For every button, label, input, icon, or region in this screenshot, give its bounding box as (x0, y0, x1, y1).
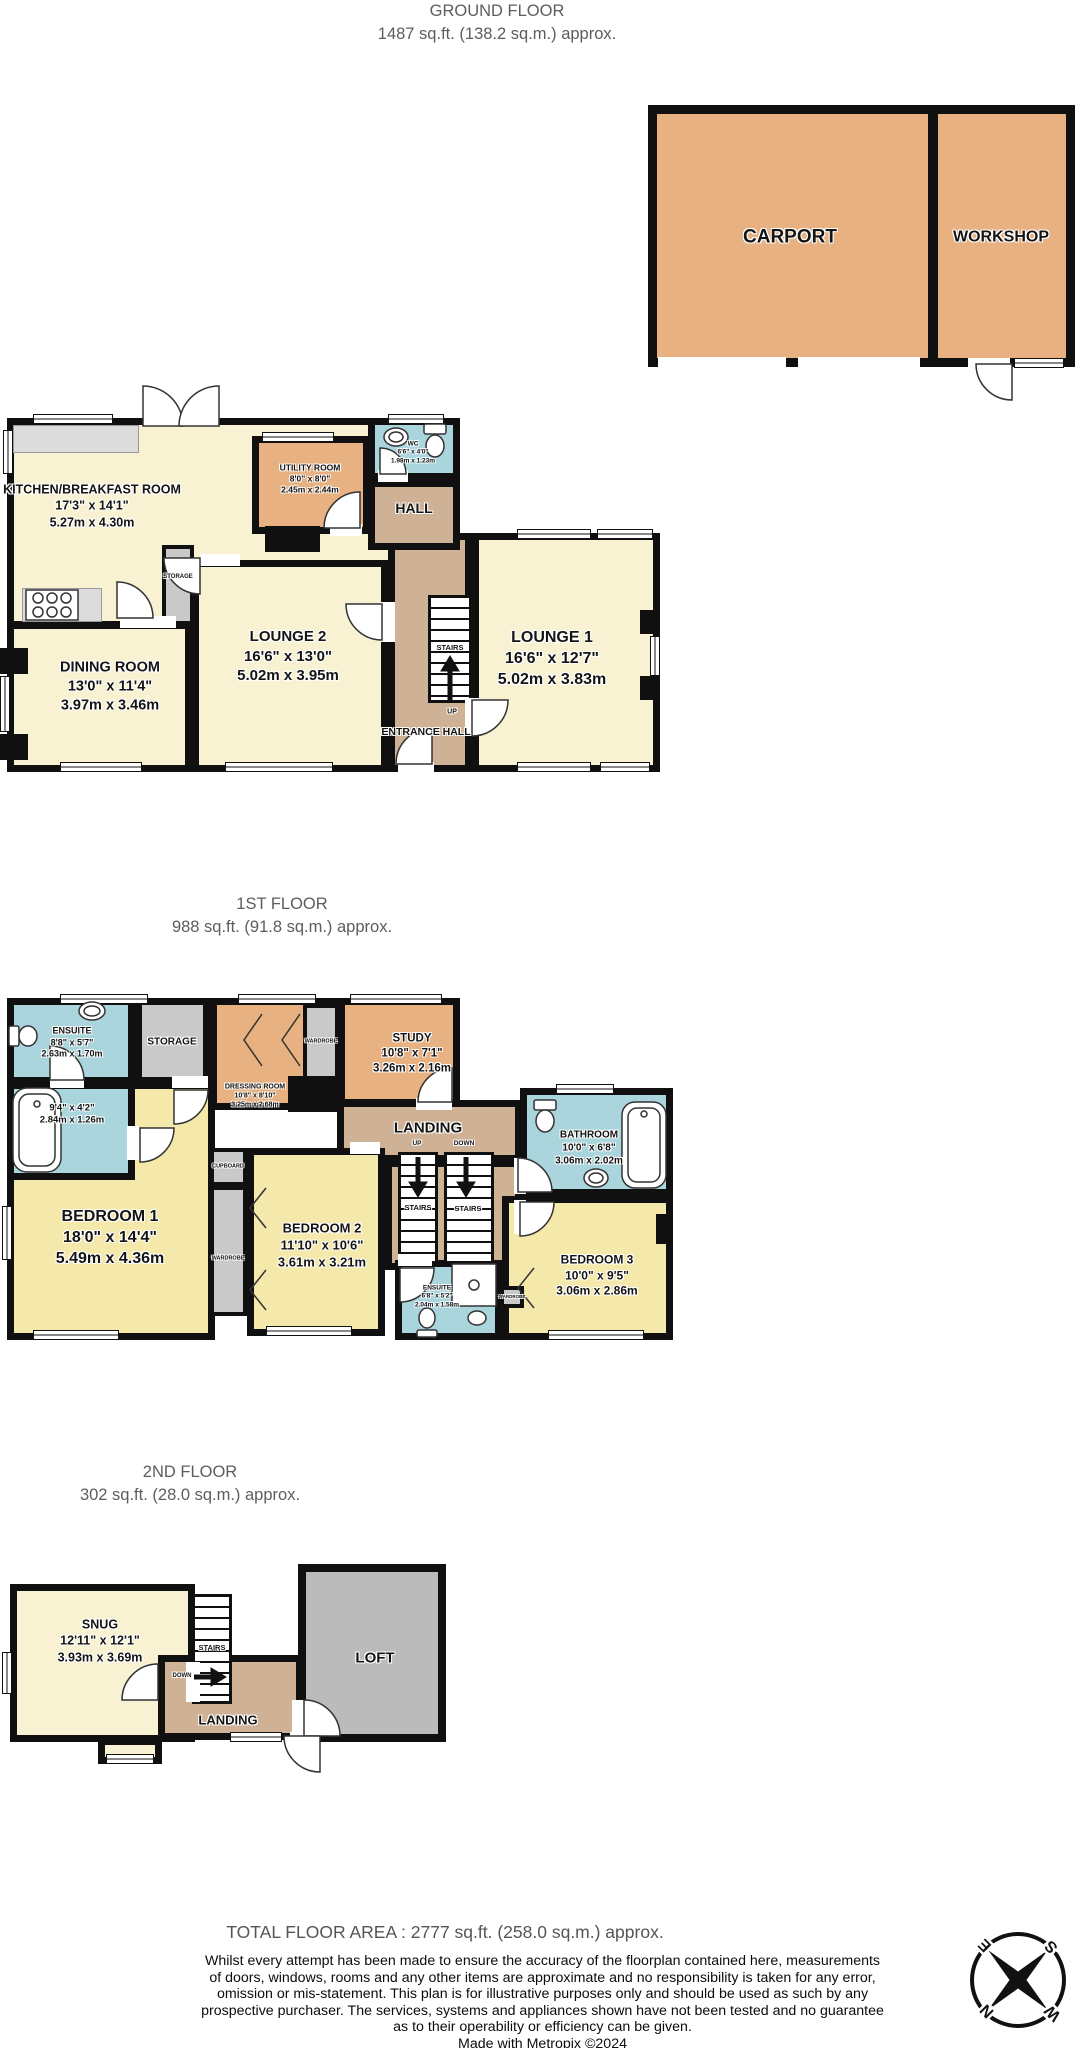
compass-star (959, 1924, 1078, 2039)
bathroom-door-opening (514, 1158, 526, 1194)
total-floor-area: TOTAL FLOOR AREA : 2777 sq.ft. (258.0 sq… (0, 1922, 890, 1943)
landing-second-label: LANDING (198, 1713, 257, 1730)
lounge1-window-bottom-right (600, 762, 650, 772)
ground-floor-title-line2: 1487 sq.ft. (138.2 sq.m.) approx. (157, 23, 837, 46)
lounge1-label: LOUNGE 1 16'6" x 12'7" 5.02m x 3.83m (498, 628, 607, 690)
ensuite2-dims-metric: 2.04m x 1.58m (415, 1301, 459, 1309)
lounge1-dims-imperial: 16'6" x 12'7" (498, 649, 607, 670)
utility-name: UTILITY ROOM (280, 462, 341, 473)
compass-e: E (975, 1935, 995, 1955)
disclaimer-line4: prospective purchaser. The services, sys… (90, 2003, 995, 2020)
lounge1-bay-stub-top (640, 610, 660, 634)
ground-floor-title-line1: GROUND FLOOR (157, 0, 837, 23)
dressing-name: DRESSING ROOM (225, 1082, 285, 1091)
room-ensuite-bath2 (7, 1082, 135, 1180)
first-floor-title-line2: 988 sq.ft. (91.8 sq.m.) approx. (0, 916, 564, 939)
hall-lounge2-door-opening (381, 602, 395, 642)
disclaimer-line2: of doors, windows, rooms and any other i… (90, 1970, 995, 1987)
bedroom1-name: BEDROOM 1 (56, 1207, 165, 1228)
bedroom3-door-opening (514, 1200, 526, 1234)
lounge1-window-top-right (597, 529, 653, 539)
bedroom2-door-opening (350, 1142, 380, 1154)
bedroom1-window-bottom (33, 1330, 119, 1340)
dressing-dims-metric: 3.25m x 2.68m (225, 1101, 285, 1110)
bathroom-name: BATHROOM (555, 1129, 623, 1142)
utility-dims-imperial: 8'0" x 8'0" (280, 473, 341, 484)
lounge1-window-bottom-left (517, 762, 591, 772)
bath2-door-opening (127, 1126, 139, 1160)
ensuite1-window (60, 994, 148, 1004)
bedroom2-dims-imperial: 11'10" x 10'6" (278, 1238, 366, 1255)
kitchen-dims-metric: 5.27m x 4.30m (3, 514, 181, 530)
storage-first-label: STORAGE (147, 1036, 196, 1049)
wc-window (388, 414, 444, 424)
closet-wardrobe-bedroom2 (210, 1186, 247, 1316)
bedroom2-label: BEDROOM 2 11'10" x 10'6" 3.61m x 3.21m (278, 1221, 366, 1272)
ensuite2-dims-imperial: 6'8" x 5'2" (415, 1293, 459, 1301)
kitchen-double-door-opening (143, 414, 219, 426)
wc-door-opening (378, 470, 408, 482)
utility-window (262, 432, 334, 442)
bath2-label: 9'4" x 4'2" 2.84m x 1.26m (40, 1103, 104, 1128)
wardrobe-small-label: WARDROBE (499, 1294, 526, 1300)
bath2-dims-imperial: 9'4" x 4'2" (40, 1103, 104, 1115)
wardrobe-bedroom2-label: WARDROBE (212, 1255, 245, 1262)
bedroom2-window-bottom (266, 1326, 352, 1336)
study-window (350, 994, 442, 1004)
wardrobe-dressing-label: WARDROBE (305, 1038, 338, 1045)
bedroom1-dims-metric: 5.49m x 4.36m (56, 1248, 165, 1269)
floorplan-canvas: GROUND FLOOR 1487 sq.ft. (138.2 sq.m.) a… (0, 0, 1079, 2048)
compass-rose: N S E W (956, 1924, 1079, 2040)
bath2-dims-metric: 2.84m x 1.26m (40, 1115, 104, 1127)
study-label: STUDY 10'8" x 7'1" 3.26m x 2.16m (373, 1032, 451, 1077)
bedroom1-window-left (2, 1206, 12, 1260)
snug-door-opening (186, 1662, 200, 1702)
bedroom2-name: BEDROOM 2 (278, 1221, 366, 1238)
kitchen-counter-top (13, 425, 139, 453)
chimney-block-dressing (288, 1076, 340, 1112)
ensuite1-dims-imperial: 8'8" x 5'7" (41, 1037, 102, 1049)
lounge2-label: LOUNGE 2 16'6" x 13'0" 5.02m x 3.95m (237, 627, 339, 686)
study-dims-imperial: 10'8" x 7'1" (373, 1047, 451, 1062)
wall-chunk-utility (265, 526, 320, 552)
disclaimer-line1: Whilst every attempt has been made to en… (90, 1953, 995, 1970)
bathroom-window (556, 1084, 614, 1094)
workshop-door-opening (968, 358, 1010, 369)
ground-stairs-label: STAIRS (437, 643, 464, 653)
lounge1-bay-stub-bottom (640, 676, 660, 700)
snug-name: SNUG (58, 1617, 143, 1633)
first-floor-title-line1: 1ST FLOOR (0, 893, 564, 916)
kitchen-counter-stove (22, 588, 102, 622)
kitchen-dims-imperial: 17'3" x 14'1" (3, 498, 181, 514)
first-stairs-label-left: STAIRS (405, 1203, 432, 1213)
snug-window-left (2, 1652, 12, 1694)
dressing-dims-imperial: 10'8" x 8'10" (225, 1091, 285, 1100)
dining-bay-stub-top (0, 648, 28, 674)
disclaimer: Whilst every attempt has been made to en… (90, 1953, 995, 2048)
snug-dims-metric: 3.93m x 3.69m (58, 1649, 143, 1665)
dining-door-opening (120, 616, 176, 628)
wc-dims-metric: 1.98m x 1.23m (391, 457, 435, 465)
ensuite1-label: ENSUITE 8'8" x 5'7" 2.63m x 1.70m (41, 1025, 102, 1060)
kitchen-label: KITCHEN/BREAKFAST ROOM 17'3" x 14'1" 5.2… (3, 482, 181, 531)
chimney-block-bedroom3 (656, 1214, 673, 1244)
bedroom3-dims-metric: 3.06m x 2.86m (556, 1284, 637, 1300)
hall-label: HALL (395, 499, 432, 517)
carport-workshop-divider-wall (928, 105, 938, 367)
ground-stairs-up-label: UP (447, 707, 457, 716)
first-floor-title: 1ST FLOOR 988 sq.ft. (91.8 sq.m.) approx… (0, 893, 564, 939)
study-name: STUDY (373, 1032, 451, 1047)
landing-up-label: UP (412, 1140, 421, 1148)
snug-step-window (106, 1754, 154, 1764)
wc-dims-imperial: 6'6" x 4'0" (391, 449, 435, 457)
bedroom3-dims-imperial: 10'0" x 9'5" (556, 1268, 637, 1284)
bedroom1-label: BEDROOM 1 18'0" x 14'4" 5.49m x 4.36m (56, 1207, 165, 1269)
bedroom3-window-bottom (548, 1330, 644, 1340)
dining-label: DINING ROOM 13'0" x 11'4" 3.97m x 3.46m (60, 659, 160, 716)
ensuite1-dims-metric: 2.63m x 1.70m (41, 1049, 102, 1061)
lounge2-door-opening (200, 554, 240, 566)
dining-dims-metric: 3.97m x 3.46m (60, 696, 160, 715)
disclaimer-line6: Made with Metropix ©2024 (90, 2036, 995, 2048)
bedroom3-label: BEDROOM 3 10'0" x 9'5" 3.06m x 2.86m (556, 1253, 637, 1300)
lounge1-dims-metric: 5.02m x 3.83m (498, 669, 607, 690)
front-door-opening (398, 762, 434, 774)
bedroom3-name: BEDROOM 3 (556, 1253, 637, 1269)
ground-floor-title: GROUND FLOOR 1487 sq.ft. (138.2 sq.m.) a… (157, 0, 837, 46)
carport-opening-right (798, 357, 920, 368)
bedroom2-dims-metric: 3.61m x 3.21m (278, 1254, 366, 1271)
dining-bay-window (0, 676, 10, 732)
entrance-hall-label: ENTRANCE HALL (381, 726, 470, 740)
ensuite2-label: ENSUITE 6'8" x 5'2" 2.04m x 1.58m (415, 1284, 459, 1309)
lounge2-name: LOUNGE 2 (237, 627, 339, 647)
disclaimer-line5: as to their operability or efficiency ca… (90, 2019, 995, 2036)
study-door-opening (416, 1098, 452, 1110)
storage-ground-label: STORAGE (163, 574, 193, 582)
landing-first-label: LANDING (394, 1118, 462, 1138)
bedroom1-dims-imperial: 18'0" x 14'4" (56, 1228, 165, 1249)
second-floor-title: 2ND FLOOR 302 sq.ft. (28.0 sq.m.) approx… (0, 1461, 380, 1507)
closet-storage-ground (162, 545, 194, 625)
bathroom-dims-imperial: 10'0" x 6'8" (555, 1142, 623, 1155)
dressing-label: DRESSING ROOM 10'8" x 8'10" 3.25m x 2.68… (225, 1082, 285, 1109)
utility-dims-metric: 2.45m x 2.44m (280, 485, 341, 496)
lounge2-window-bottom (225, 762, 333, 772)
kitchen-name: KITCHEN/BREAKFAST ROOM (3, 482, 181, 498)
lounge1-bay-window (650, 636, 660, 676)
ensuite1-door-opening (50, 1076, 84, 1088)
carport-label: CARPORT (743, 226, 837, 251)
second-floor-title-line1: 2ND FLOOR (0, 1461, 380, 1484)
dining-name: DINING ROOM (60, 659, 160, 678)
kitchen-window-left (3, 430, 13, 474)
disclaimer-line3: omission or mis-statement. This plan is … (90, 1986, 995, 2003)
dining-window-bottom (60, 762, 142, 772)
cupboard-label: CUPBOARD (212, 1163, 244, 1170)
lounge2-dims-imperial: 16'6" x 13'0" (237, 646, 339, 666)
bathroom-label: BATHROOM 10'0" x 6'8" 3.06m x 2.02m (555, 1129, 623, 1168)
snug-label: SNUG 12'11" x 12'1" 3.93m x 3.69m (58, 1617, 143, 1666)
second-stairs-down-label: DOWN (173, 1673, 192, 1681)
kitchen-window-top (33, 414, 113, 424)
carport-opening-left (658, 357, 786, 368)
landing-second-window (230, 1732, 282, 1742)
loft-label: LOFT (355, 1648, 394, 1668)
lounge2-dims-metric: 5.02m x 3.95m (237, 666, 339, 686)
wc-label: WC 6'6" x 4'0" 1.98m x 1.23m (391, 440, 435, 465)
workshop-window (1014, 358, 1064, 368)
ensuite2-door-opening (398, 1254, 432, 1266)
landing-exterior-door-opening (290, 1732, 318, 1742)
dining-dims-imperial: 13'0" x 11'4" (60, 678, 160, 697)
dining-bay-stub-bottom (0, 734, 28, 760)
utility-label: UTILITY ROOM 8'0" x 8'0" 2.45m x 2.44m (280, 462, 341, 495)
bedroom1-door-opening (172, 1076, 208, 1088)
study-dims-metric: 3.26m x 2.16m (373, 1061, 451, 1076)
bathroom-dims-metric: 3.06m x 2.02m (555, 1155, 623, 1168)
landing-down-label: DOWN (454, 1140, 475, 1148)
dressing-window (238, 994, 316, 1004)
ensuite1-name: ENSUITE (41, 1025, 102, 1037)
first-stairs-label-right: STAIRS (455, 1204, 482, 1214)
second-stairs-label: STAIRS (199, 1643, 226, 1653)
utility-door-opening (330, 524, 362, 536)
workshop-label: WORKSHOP (953, 228, 1049, 249)
lounge1-name: LOUNGE 1 (498, 628, 607, 649)
second-floor-title-line2: 302 sq.ft. (28.0 sq.m.) approx. (0, 1484, 380, 1507)
snug-dims-imperial: 12'11" x 12'1" (58, 1633, 143, 1649)
compass-w: W (1041, 2001, 1064, 2024)
lounge1-window-top-left (517, 529, 591, 539)
